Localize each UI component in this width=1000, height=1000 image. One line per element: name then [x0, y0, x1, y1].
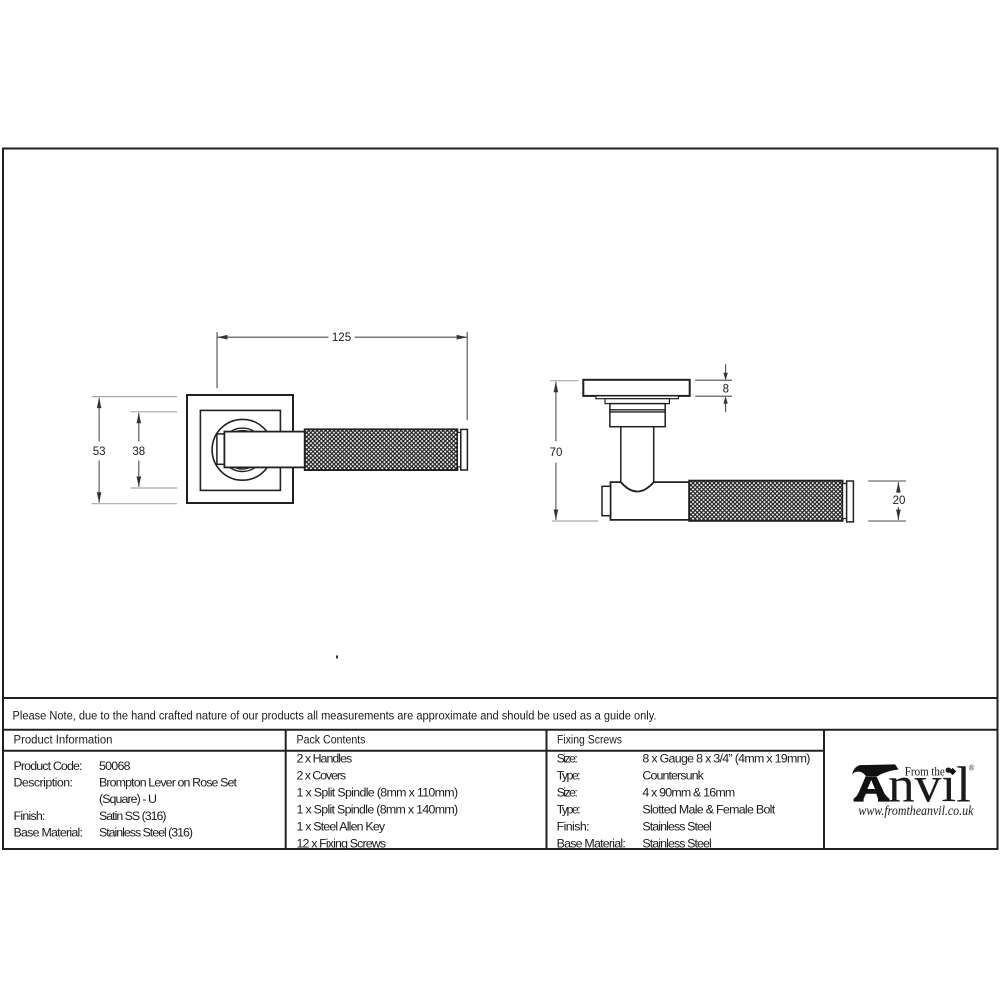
- svg-text:Finish:: Finish:: [557, 820, 590, 834]
- svg-text:2 x Covers: 2 x Covers: [297, 769, 347, 783]
- svg-text:www.fromtheanvil.co.uk: www.fromtheanvil.co.uk: [858, 804, 974, 819]
- svg-text:Slotted Male & Female Bolt: Slotted Male & Female Bolt: [642, 803, 775, 817]
- svg-text:Pack Contents: Pack Contents: [297, 733, 366, 747]
- svg-text:Stainless Steel (316): Stainless Steel (316): [99, 825, 193, 839]
- svg-text:Base Material:: Base Material:: [557, 837, 626, 851]
- svg-text:®: ®: [969, 764, 975, 773]
- svg-text:8 x Gauge 8 x 3/4” (4mm x 19mm: 8 x Gauge 8 x 3/4” (4mm x 19mm): [642, 752, 810, 766]
- svg-text:Finish:: Finish:: [14, 809, 46, 823]
- svg-text:4 x 90mm & 16mm: 4 x 90mm & 16mm: [642, 786, 735, 800]
- svg-text:Countersunk: Countersunk: [642, 769, 704, 783]
- svg-text:Stainless Steel: Stainless Steel: [642, 837, 711, 851]
- svg-text:Type:: Type:: [557, 769, 581, 783]
- svg-text:20: 20: [893, 495, 906, 507]
- svg-text:From the: From the: [905, 764, 945, 778]
- svg-text:Stainless Steel: Stainless Steel: [642, 820, 711, 834]
- svg-text:Size:: Size:: [557, 752, 578, 766]
- svg-text:53: 53: [93, 446, 106, 458]
- svg-text:1 x Split Spindle (8mm x 140mm: 1 x Split Spindle (8mm x 140mm): [297, 803, 459, 817]
- svg-text:Fixing Screws: Fixing Screws: [557, 733, 622, 747]
- svg-text:Product Code:: Product Code:: [14, 759, 83, 773]
- svg-text:Please Note, due to the hand c: Please Note, due to the hand crafted nat…: [13, 709, 657, 723]
- svg-text:Satin SS (316): Satin SS (316): [99, 809, 167, 823]
- svg-text:8: 8: [723, 384, 729, 396]
- svg-text:1 x Split Spindle (8mm x 110mm: 1 x Split Spindle (8mm x 110mm): [297, 786, 459, 800]
- svg-text:Description:: Description:: [14, 776, 74, 790]
- svg-text:Base Material:: Base Material:: [14, 825, 84, 839]
- svg-text:70: 70: [550, 447, 563, 459]
- svg-text:1 x Steel Allen Key: 1 x Steel Allen Key: [297, 820, 386, 834]
- svg-text:125: 125: [332, 332, 351, 344]
- svg-text:2 x Handles: 2 x Handles: [297, 752, 353, 766]
- svg-text:12 x Fixing Screws: 12 x Fixing Screws: [297, 837, 387, 851]
- svg-text:Size:: Size:: [557, 786, 578, 800]
- svg-text:Product Information: Product Information: [14, 733, 113, 747]
- svg-text:(Square) - U: (Square) - U: [99, 792, 157, 806]
- svg-text:Type:: Type:: [557, 803, 581, 817]
- svg-text:38: 38: [132, 446, 145, 458]
- svg-text:50068: 50068: [99, 759, 131, 773]
- svg-text:Brompton Lever on Rose Set: Brompton Lever on Rose Set: [99, 776, 238, 790]
